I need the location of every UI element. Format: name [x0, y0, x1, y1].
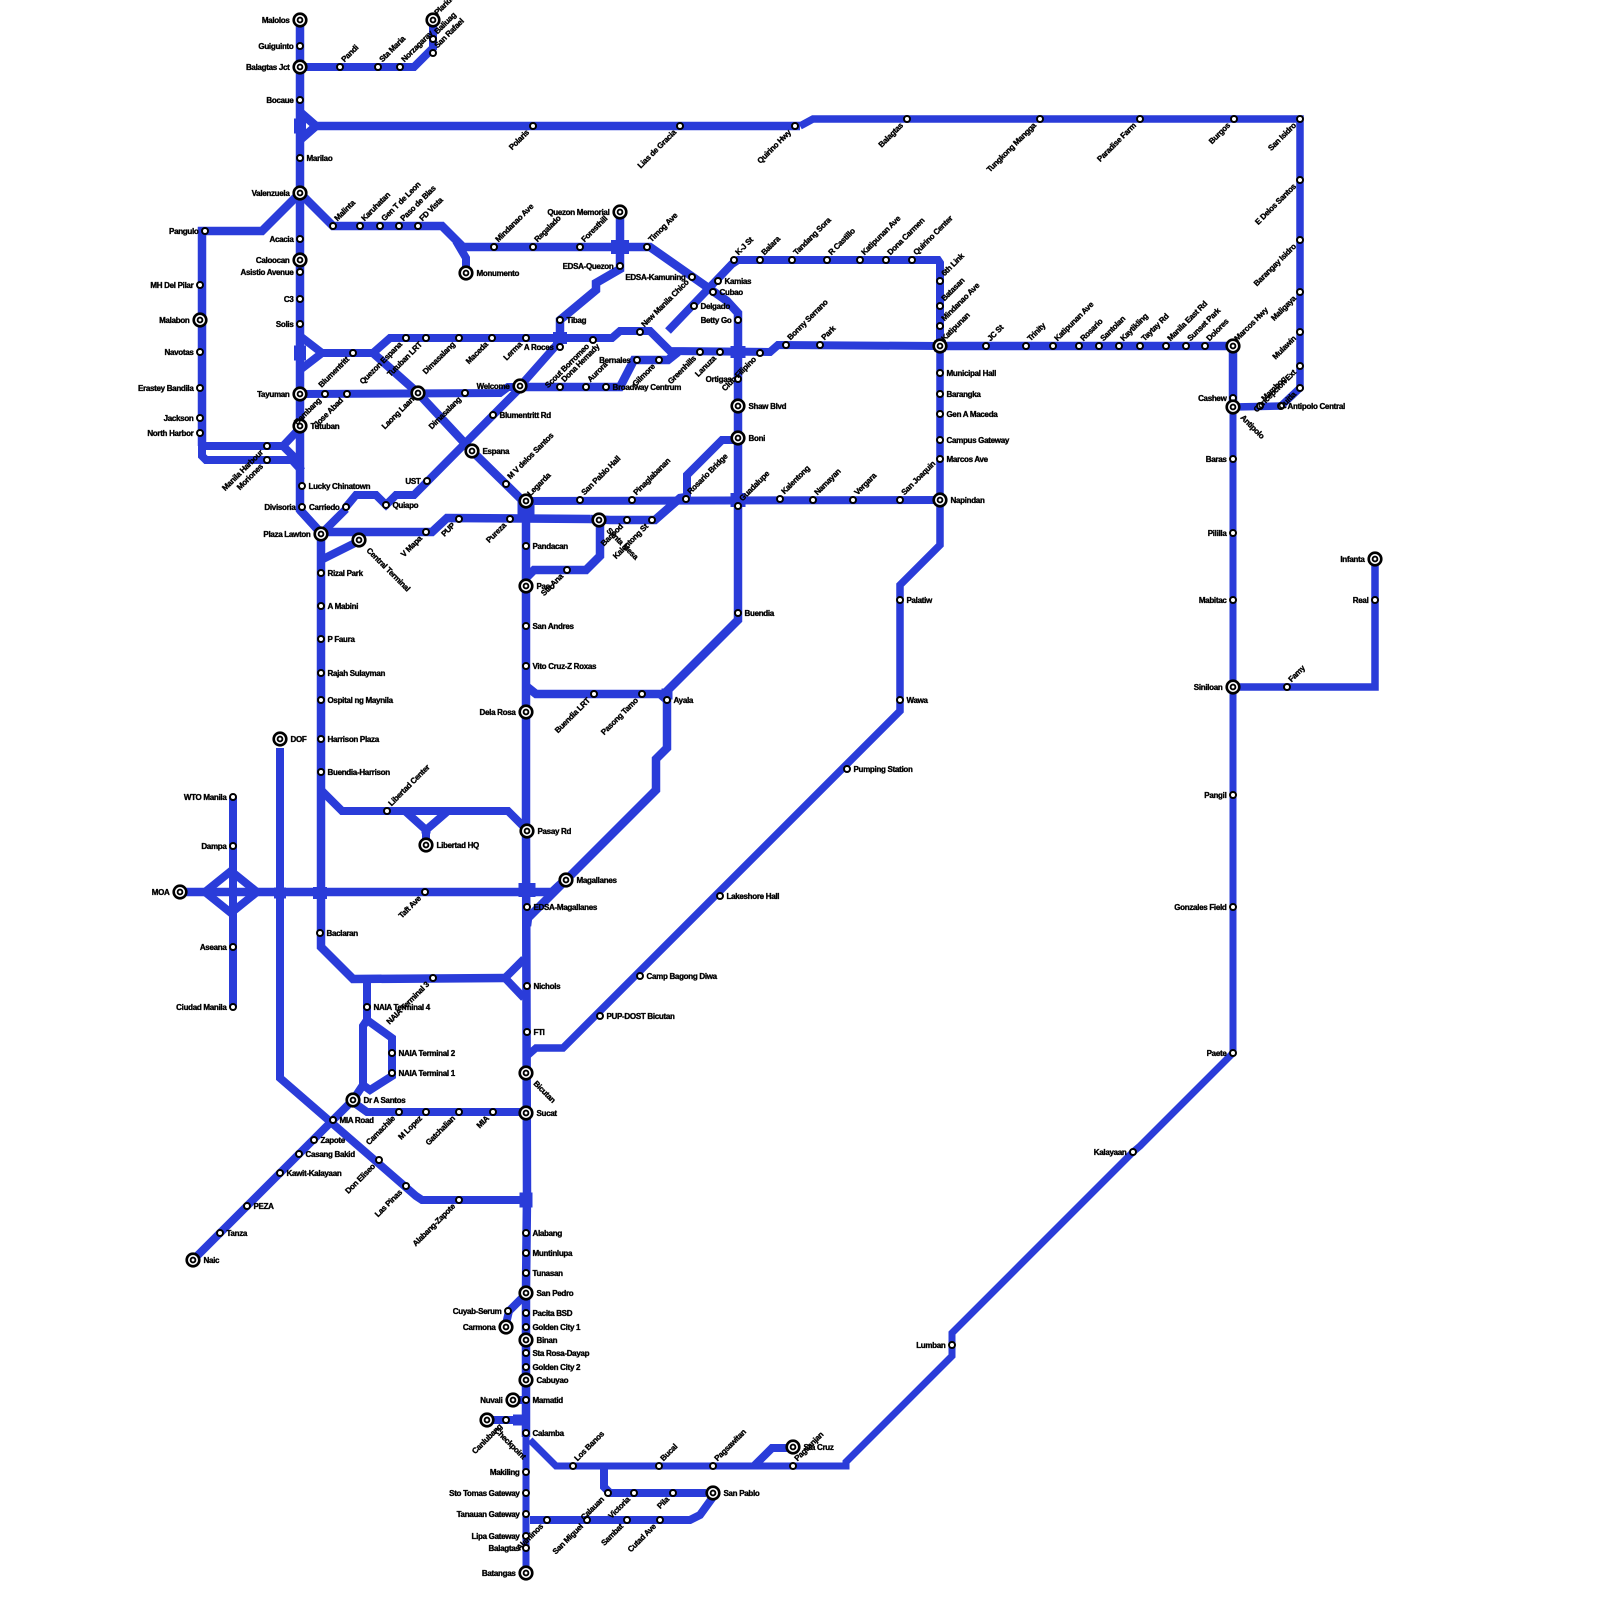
svg-text:P Faura: P Faura	[328, 635, 356, 644]
svg-text:EDSA-Magallanes: EDSA-Magallanes	[534, 903, 598, 912]
svg-text:Cashew: Cashew	[1198, 394, 1228, 403]
svg-text:Asistio Avenue: Asistio Avenue	[241, 268, 295, 277]
svg-text:Quiapo: Quiapo	[393, 501, 419, 510]
svg-text:A Mabini: A Mabini	[328, 602, 359, 611]
svg-text:Municipal Hall: Municipal Hall	[947, 369, 997, 378]
svg-text:Baclaran: Baclaran	[327, 929, 359, 938]
svg-text:Cubao: Cubao	[720, 288, 744, 297]
svg-text:Binan: Binan	[537, 1336, 558, 1345]
svg-text:Betty Go: Betty Go	[701, 316, 732, 325]
svg-text:Marilao: Marilao	[307, 154, 333, 163]
svg-text:Gen A Maceda: Gen A Maceda	[947, 410, 999, 419]
svg-text:NAIA Terminal 4: NAIA Terminal 4	[374, 1003, 431, 1012]
svg-text:Pasay Rd: Pasay Rd	[538, 827, 572, 836]
svg-text:Sta Rosa-Dayap: Sta Rosa-Dayap	[533, 1349, 590, 1358]
svg-text:Lumban: Lumban	[916, 1341, 946, 1350]
svg-text:Welcome: Welcome	[477, 382, 511, 391]
svg-text:EDSA-Kamuning: EDSA-Kamuning	[625, 273, 686, 282]
svg-text:NAIA Terminal 1: NAIA Terminal 1	[399, 1069, 456, 1078]
svg-text:Broadway Centrum: Broadway Centrum	[613, 383, 682, 392]
svg-text:WTO Manila: WTO Manila	[184, 793, 227, 802]
svg-text:Pacita BSD: Pacita BSD	[533, 1309, 573, 1318]
svg-text:Magallanes: Magallanes	[577, 876, 618, 885]
svg-text:Real: Real	[1353, 596, 1369, 605]
svg-text:Palatiw: Palatiw	[907, 596, 934, 605]
svg-text:Makiling: Makiling	[490, 1468, 520, 1477]
svg-text:Blumentritt Rd: Blumentritt Rd	[500, 411, 552, 420]
svg-text:Rajah Sulayman: Rajah Sulayman	[328, 669, 386, 678]
svg-text:Sto Tomas Gateway: Sto Tomas Gateway	[449, 1489, 520, 1498]
svg-text:Nichols: Nichols	[534, 982, 562, 991]
svg-text:Buendia: Buendia	[745, 609, 775, 618]
svg-text:A Roces: A Roces	[524, 343, 554, 352]
svg-text:Tayuman: Tayuman	[257, 390, 290, 399]
svg-text:Campus Gateway: Campus Gateway	[947, 436, 1010, 445]
svg-text:San Pablo: San Pablo	[724, 1489, 760, 1498]
svg-text:Tibag: Tibag	[567, 316, 587, 325]
svg-text:Malolos: Malolos	[262, 16, 291, 25]
svg-text:Mamatid: Mamatid	[533, 1396, 564, 1405]
svg-text:Casang Bakid: Casang Bakid	[306, 1150, 356, 1159]
svg-text:Calamba: Calamba	[533, 1429, 565, 1438]
svg-text:Camp Bagong Diwa: Camp Bagong Diwa	[647, 972, 718, 981]
svg-text:Quezon Memorial: Quezon Memorial	[547, 208, 609, 217]
svg-text:Caloocan: Caloocan	[256, 256, 290, 265]
svg-text:PEZA: PEZA	[254, 1202, 275, 1211]
svg-text:Kamias: Kamias	[725, 277, 753, 286]
svg-text:MIA Road: MIA Road	[340, 1116, 375, 1125]
svg-text:DOF: DOF	[291, 735, 307, 744]
svg-text:Paete: Paete	[1207, 1049, 1228, 1058]
svg-text:Divisoria: Divisoria	[264, 503, 296, 512]
svg-text:MOA: MOA	[152, 888, 170, 897]
svg-text:FTI: FTI	[534, 1028, 545, 1037]
svg-text:EDSA-Quezon: EDSA-Quezon	[563, 262, 614, 271]
svg-text:North Harbor: North Harbor	[147, 429, 193, 438]
svg-text:Aseana: Aseana	[200, 943, 228, 952]
svg-text:C3: C3	[284, 295, 294, 304]
svg-text:Kawit-Kalayaan: Kawit-Kalayaan	[287, 1169, 342, 1178]
svg-text:Pumping Station: Pumping Station	[854, 765, 913, 774]
svg-text:Solis: Solis	[276, 320, 294, 329]
svg-text:Valenzuela: Valenzuela	[252, 189, 291, 198]
svg-text:Alabang: Alabang	[533, 1229, 563, 1238]
svg-text:Paco: Paco	[537, 582, 555, 591]
svg-text:Marcos Ave: Marcos Ave	[947, 455, 989, 464]
svg-text:Jackson: Jackson	[164, 414, 194, 423]
svg-text:Pangulo: Pangulo	[169, 227, 199, 236]
svg-text:Baras: Baras	[1206, 455, 1228, 464]
svg-text:Carriedo: Carriedo	[309, 503, 340, 512]
svg-text:Pililla: Pililla	[1208, 529, 1228, 538]
svg-text:Muntinlupa: Muntinlupa	[533, 1249, 574, 1258]
svg-text:Siniloan: Siniloan	[1194, 683, 1223, 692]
svg-text:Infanta: Infanta	[1340, 555, 1365, 564]
svg-text:Sucat: Sucat	[537, 1109, 558, 1118]
svg-text:Rizal Park: Rizal Park	[328, 569, 364, 578]
svg-text:Buendia-Harrison: Buendia-Harrison	[328, 768, 391, 777]
svg-text:Golden City 1: Golden City 1	[533, 1323, 582, 1332]
svg-text:Mabitac: Mabitac	[1199, 596, 1228, 605]
svg-text:Guiguinto: Guiguinto	[258, 42, 293, 51]
svg-text:Dela Rosa: Dela Rosa	[480, 708, 517, 717]
svg-text:Nuvali: Nuvali	[480, 1396, 502, 1405]
svg-text:Ciudad Manila: Ciudad Manila	[176, 1003, 227, 1012]
svg-text:UST: UST	[405, 477, 421, 486]
svg-text:Pangil: Pangil	[1204, 791, 1226, 800]
svg-text:Kalayaan: Kalayaan	[1094, 1148, 1127, 1157]
svg-text:Tunasan: Tunasan	[533, 1269, 564, 1278]
svg-text:Delgado: Delgado	[701, 302, 731, 311]
svg-text:Lucky Chinatown: Lucky Chinatown	[309, 482, 371, 491]
svg-text:Carmona: Carmona	[463, 1323, 496, 1332]
svg-text:Cabuyao: Cabuyao	[537, 1376, 569, 1385]
svg-text:Batangas: Batangas	[482, 1569, 516, 1578]
svg-text:Wawa: Wawa	[907, 696, 929, 705]
svg-text:Naic: Naic	[204, 1256, 221, 1265]
svg-text:Erastey Bandila: Erastey Bandila	[138, 384, 194, 393]
svg-text:Barangka: Barangka	[947, 390, 982, 399]
svg-text:Lakeshore Hall: Lakeshore Hall	[727, 892, 780, 901]
svg-text:Ortigas: Ortigas	[706, 375, 733, 384]
svg-text:Navotas: Navotas	[164, 348, 194, 357]
svg-text:Espana: Espana	[483, 447, 511, 456]
svg-text:Ayala: Ayala	[674, 696, 694, 705]
svg-text:Libertad HQ: Libertad HQ	[437, 841, 480, 850]
svg-text:Golden City 2: Golden City 2	[533, 1363, 582, 1372]
svg-text:Lipa Gateway: Lipa Gateway	[472, 1532, 521, 1541]
svg-text:NAIA Terminal 2: NAIA Terminal 2	[399, 1049, 456, 1058]
svg-text:Plaza Lawton: Plaza Lawton	[263, 530, 310, 539]
svg-text:San Andres: San Andres	[533, 622, 575, 631]
svg-text:Malabon: Malabon	[159, 316, 190, 325]
svg-text:Ospital ng Maynila: Ospital ng Maynila	[328, 696, 394, 705]
svg-text:Napindan: Napindan	[951, 496, 985, 505]
svg-text:Balagtas Jct: Balagtas Jct	[246, 63, 290, 72]
svg-text:Vito Cruz-Z Roxas: Vito Cruz-Z Roxas	[533, 662, 598, 671]
svg-text:Gonzales Field: Gonzales Field	[1174, 903, 1227, 912]
svg-text:PUP-DOST Bicutan: PUP-DOST Bicutan	[607, 1012, 676, 1021]
svg-text:MH Del Pilar: MH Del Pilar	[150, 281, 193, 290]
svg-text:Boni: Boni	[749, 434, 766, 443]
svg-text:Cuyab-Serum: Cuyab-Serum	[453, 1307, 502, 1316]
svg-text:Dampa: Dampa	[201, 842, 227, 851]
svg-text:Antipolo Central: Antipolo Central	[1288, 402, 1345, 411]
svg-text:Sta Cruz: Sta Cruz	[804, 1443, 834, 1452]
svg-text:Zapote: Zapote	[321, 1136, 346, 1145]
svg-text:Pandacan: Pandacan	[533, 542, 569, 551]
svg-text:Tanauan Gateway: Tanauan Gateway	[457, 1510, 521, 1519]
svg-text:Shaw Blvd: Shaw Blvd	[749, 402, 787, 411]
svg-text:Acacia: Acacia	[270, 235, 295, 244]
svg-text:Tanza: Tanza	[227, 1229, 248, 1238]
svg-text:San Pedro: San Pedro	[537, 1289, 574, 1298]
svg-text:Dr A Santos: Dr A Santos	[364, 1096, 407, 1105]
svg-text:Tutuban: Tutuban	[311, 422, 340, 431]
svg-text:Monumento: Monumento	[477, 269, 520, 278]
svg-text:Bocaue: Bocaue	[266, 96, 294, 105]
svg-text:Harrison Plaza: Harrison Plaza	[328, 735, 380, 744]
